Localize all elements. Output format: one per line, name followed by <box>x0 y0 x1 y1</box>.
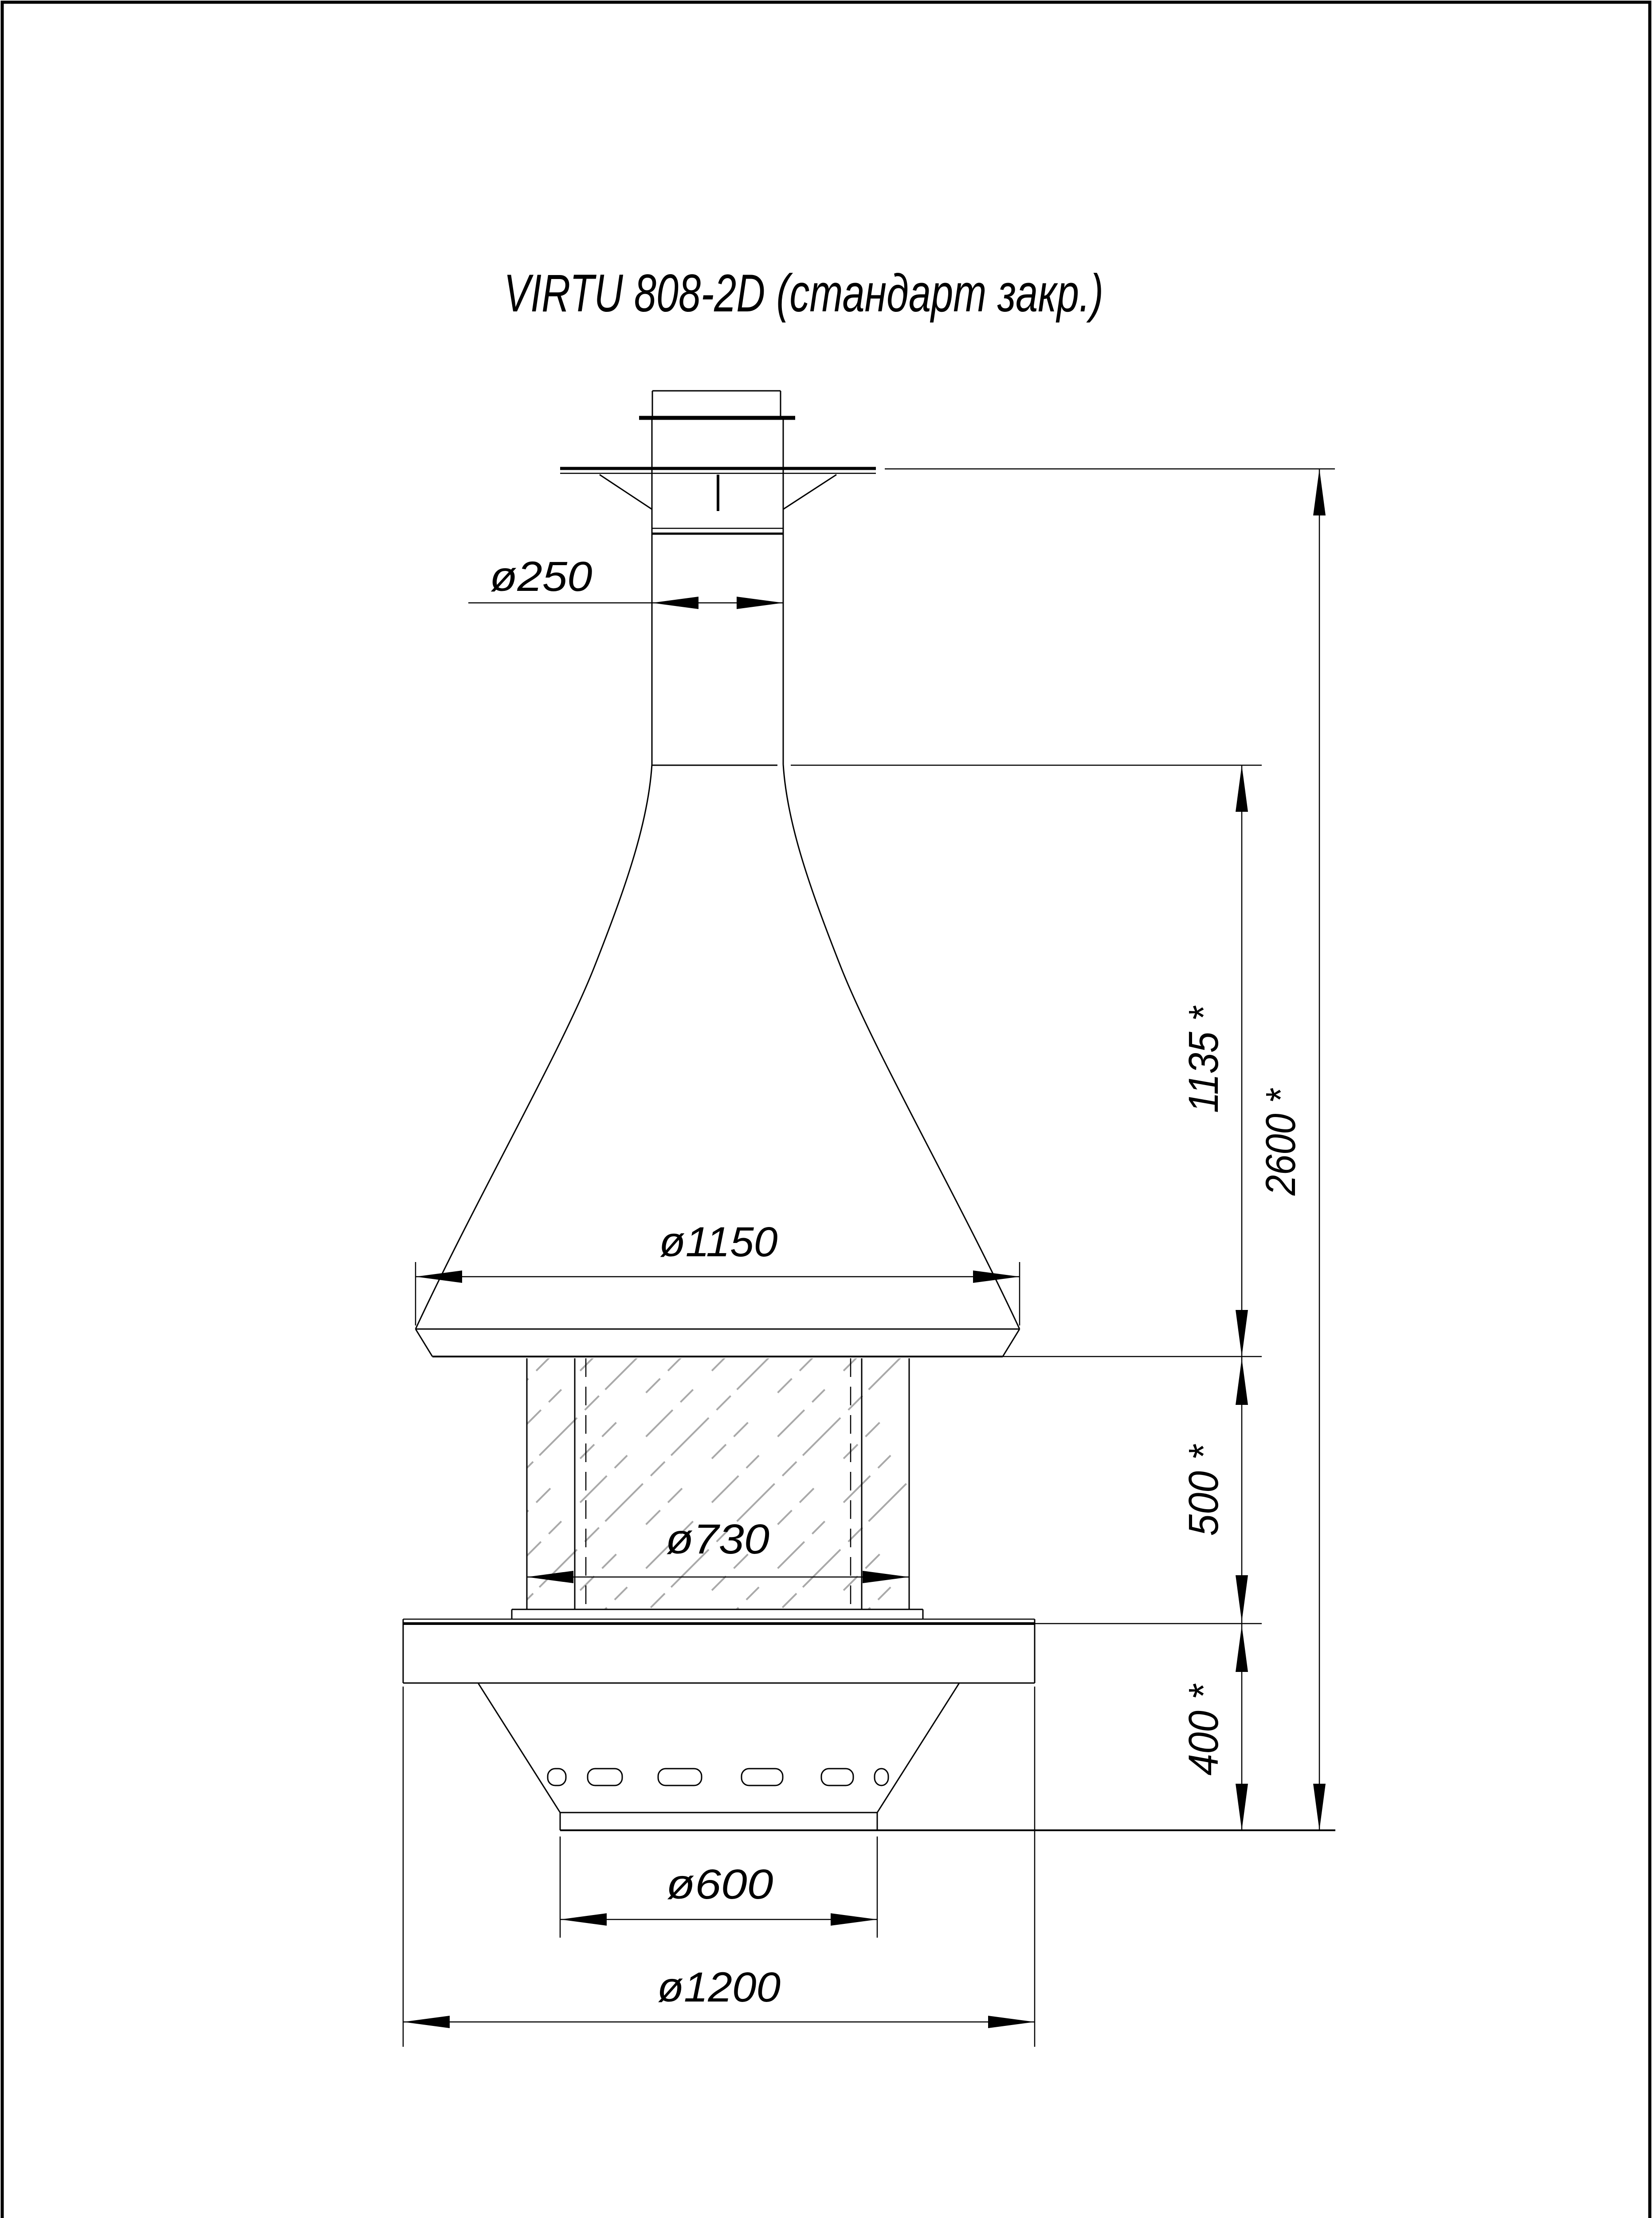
dim-label-glass-height: 500 * <box>1180 1444 1227 1536</box>
fireplace-drawing: VIRTU 808-2D (стандарт закр.) <box>0 0 1652 2218</box>
dim-label-table-diameter: ø1200 <box>657 1964 781 2011</box>
dim-label-bowl-diameter: ø600 <box>667 1861 773 1908</box>
glass-hatch <box>527 1358 909 1609</box>
dim-label-total-height: 2600 * <box>1257 1088 1304 1196</box>
dim-label-flue-diameter: ø250 <box>490 553 593 600</box>
dim-label-hood-diameter: ø1150 <box>659 1219 778 1266</box>
dim-label-base-height: 400 * <box>1180 1683 1227 1776</box>
glass-section <box>527 1358 909 1609</box>
dim-label-hood-height: 1135 * <box>1180 1005 1227 1113</box>
drawing-title: VIRTU 808-2D (стандарт закр.) <box>504 263 1103 323</box>
dim-label-glass-diameter: ø730 <box>666 1516 769 1563</box>
page-background <box>0 0 1652 2218</box>
